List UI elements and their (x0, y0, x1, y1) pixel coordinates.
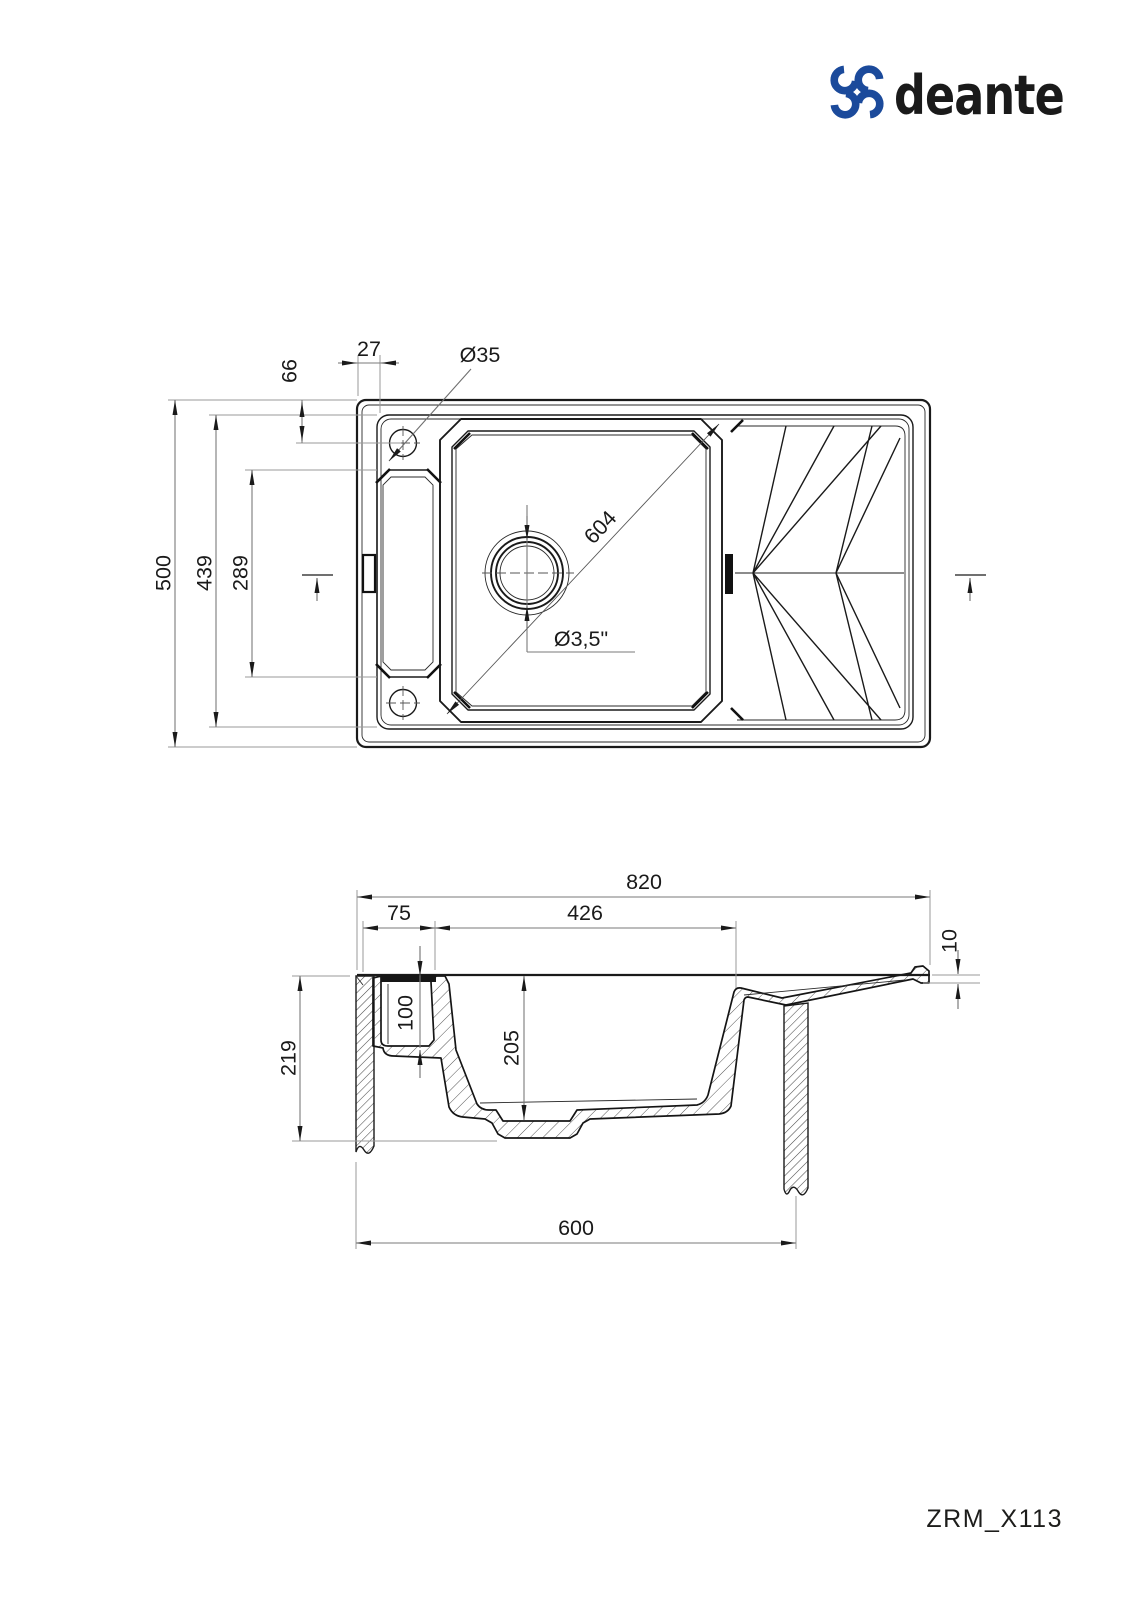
countertop-right (784, 1003, 808, 1195)
drainboard (731, 420, 905, 720)
brand-logo: deante (830, 64, 1064, 127)
brand-name: deante (894, 64, 1064, 127)
countertop-left (356, 976, 374, 1153)
top-view-dimensions: 500 439 289 66 27 Ø35 604 Ø3,5" (152, 337, 719, 747)
tap-recess-chamfers (376, 469, 441, 678)
magnet-bar (725, 554, 733, 594)
logo-arc-ne (854, 65, 882, 93)
centerline-marker-left (302, 575, 333, 601)
dim-hole-offset-left-label: 27 (357, 337, 381, 361)
dim-ledge-width-label: 75 (387, 901, 411, 925)
dim-bowl-width-label: 426 (567, 901, 603, 925)
tap-recess (377, 470, 440, 677)
dim-bowl-depth-label: 205 (500, 1030, 524, 1066)
side-view-dimensions: 820 75 426 10 219 100 205 600 (277, 870, 980, 1249)
sink-rim-edge (381, 419, 909, 725)
dim-ledge-depth-label: 100 (394, 995, 418, 1031)
logo-arc-se (857, 89, 885, 117)
drawing-page: deante (0, 0, 1131, 1600)
dim-total-depth-label: 219 (277, 1040, 301, 1076)
side-view: 820 75 426 10 219 100 205 600 (277, 870, 980, 1249)
bowl-floor-line (480, 1099, 697, 1103)
dim-hole-offset-top-label: 66 (278, 359, 302, 383)
sink-rim (377, 415, 913, 729)
tap-deck (376, 426, 441, 720)
dim-drain-dia-label: Ø3,5" (554, 627, 608, 651)
dim-recess-length-label: 289 (229, 555, 253, 591)
logo-arc-sw (833, 92, 861, 120)
dim-inner-depth-label: 439 (193, 555, 217, 591)
dim-base-width-label: 600 (558, 1216, 594, 1240)
dim-rim-thickness-label: 10 (938, 929, 962, 953)
dim-overall-depth-label: 500 (152, 555, 176, 591)
centerline-marker-right (955, 575, 986, 601)
dim-bowl-diagonal-label: 604 (579, 506, 621, 549)
tap-hole-dia-label: Ø35 (460, 343, 501, 367)
tap-recess-inner (383, 477, 433, 670)
dim-bowl-diagonal-line (447, 424, 719, 714)
ledge-front-edge (381, 975, 436, 982)
top-view: 500 439 289 66 27 Ø35 604 Ø3,5" (152, 337, 986, 747)
brand-logo-icon (830, 65, 884, 119)
logo-arc-nw (830, 68, 858, 96)
left-clip (363, 555, 375, 592)
model-code: ZRM_X113 (926, 1505, 1063, 1533)
sink-section (373, 966, 929, 1138)
dim-overall-width-label: 820 (626, 870, 662, 894)
technical-drawing: deante (0, 0, 1131, 1600)
